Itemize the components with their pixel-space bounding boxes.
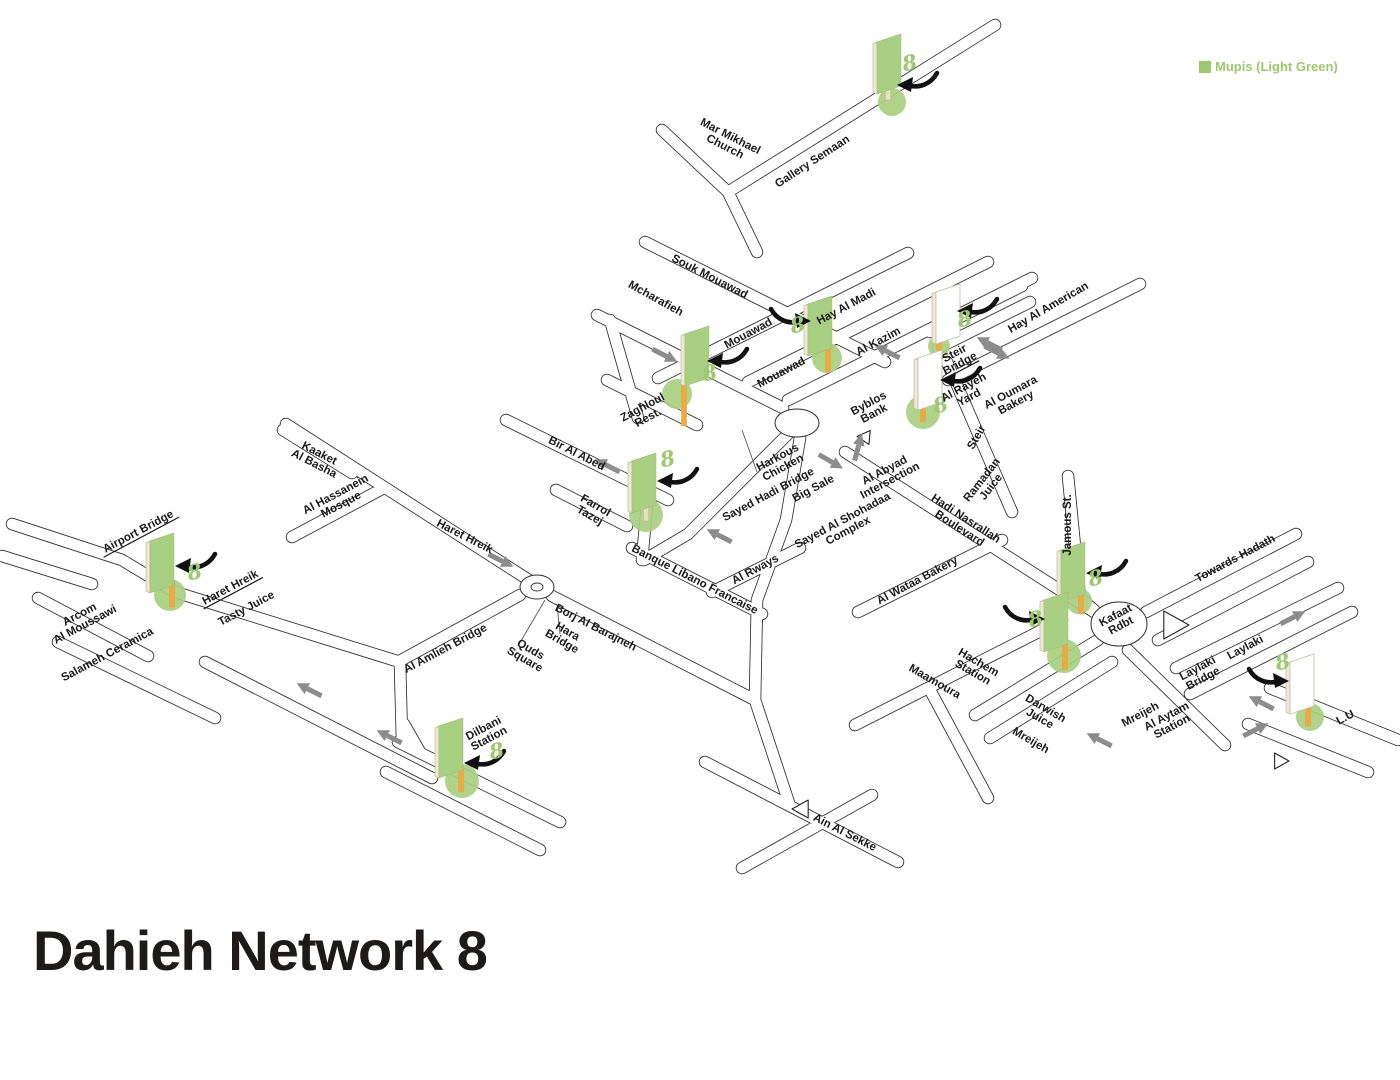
mupi-marker: 8: [873, 34, 937, 116]
street-label: Al Wataa Bakery: [875, 554, 960, 607]
svg-text:Al OumaraBakery: Al OumaraBakery: [982, 374, 1045, 422]
mupi-panel-edge: [435, 726, 439, 778]
svg-text:Towards Hadath: Towards Hadath: [1194, 533, 1278, 585]
svg-text:Jamous St.: Jamous St.: [1062, 494, 1074, 555]
street-label: QudsSquare: [505, 635, 551, 675]
svg-text:Mcharafieh: Mcharafieh: [626, 279, 685, 319]
map-page: 88888888888Mar MikhaelChurchGallery Sema…: [0, 0, 1400, 1080]
street-label: Towards Hadath: [1194, 533, 1278, 585]
page-title: Dahieh Network 8: [33, 918, 487, 983]
street-label: Mouawad: [723, 316, 775, 351]
mupi-number-label: 8: [657, 445, 678, 473]
street-label: Mcharafieh: [626, 279, 685, 319]
svg-text:Al Wataa Bakery: Al Wataa Bakery: [875, 554, 960, 607]
svg-text:Haret Hreik: Haret Hreik: [434, 518, 495, 557]
mupi-number-label: 8: [1085, 564, 1106, 592]
mupi-number-label: 8: [899, 49, 920, 77]
svg-text:Bir Al Abed: Bir Al Abed: [546, 435, 606, 474]
svg-text:Mar MikhaelChurch: Mar MikhaelChurch: [693, 116, 762, 167]
mupi-panel-back: [1290, 654, 1314, 714]
svg-text:QudsSquare: QudsSquare: [505, 635, 551, 675]
direction-arrow-icon: [1084, 728, 1114, 751]
mupi-panel-face: [150, 533, 174, 593]
legend-swatch-icon: [1199, 61, 1211, 73]
svg-text:Mreijeh: Mreijeh: [1010, 726, 1051, 757]
street-label: Al OumaraBakery: [982, 374, 1045, 422]
svg-text:Ain Al Sekke: Ain Al Sekke: [811, 812, 878, 854]
roundabout: [775, 409, 819, 437]
mupi-panel-face: [632, 453, 656, 513]
road-casing: [2, 25, 1398, 868]
street-label: Mreijeh: [1010, 726, 1051, 757]
svg-text:Mouawad: Mouawad: [723, 316, 775, 351]
mupi-panel-edge: [914, 358, 918, 410]
road-surface: [2, 25, 1398, 868]
direction-arrow-icon: [704, 524, 734, 547]
yield-triangle-icon: [1275, 753, 1289, 769]
mupi-panel-edge: [681, 334, 685, 386]
direction-arrow-icon: [294, 678, 324, 701]
svg-text:ByblosBank: ByblosBank: [849, 390, 894, 429]
svg-text:Souk Mouawad: Souk Mouawad: [670, 253, 750, 302]
street-label: Haret Hreik: [434, 518, 495, 557]
street-label: Sayed Al ShohadaaComplex: [793, 490, 898, 561]
mupi-number-label: 8: [184, 558, 205, 586]
svg-text:Sayed Al ShohadaaComplex: Sayed Al ShohadaaComplex: [793, 490, 898, 561]
street-label: Ain Al Sekke: [811, 812, 878, 854]
street-label: ByblosBank: [849, 390, 894, 429]
mupi-panel-edge: [628, 461, 632, 513]
mupi-panel-edge: [146, 541, 150, 593]
street-label: Souk Mouawad: [670, 253, 750, 302]
mupi-panel-edge: [932, 292, 936, 344]
street-label: Mar MikhaelChurch: [693, 116, 762, 167]
mupi-number-label: 8: [1272, 648, 1293, 676]
roundabout: [520, 575, 554, 599]
street-label: Jamous St.: [1062, 494, 1074, 555]
legend-label: Mupis (Light Green): [1215, 59, 1338, 74]
mupi-panel-edge: [873, 42, 877, 94]
street-label: Bir Al Abed: [546, 435, 606, 474]
mupi-marker: 8: [628, 445, 697, 532]
mupi-panel-face: [439, 718, 463, 778]
mupi-panel-face: [1044, 592, 1068, 652]
legend: Mupis (Light Green): [1199, 59, 1338, 74]
